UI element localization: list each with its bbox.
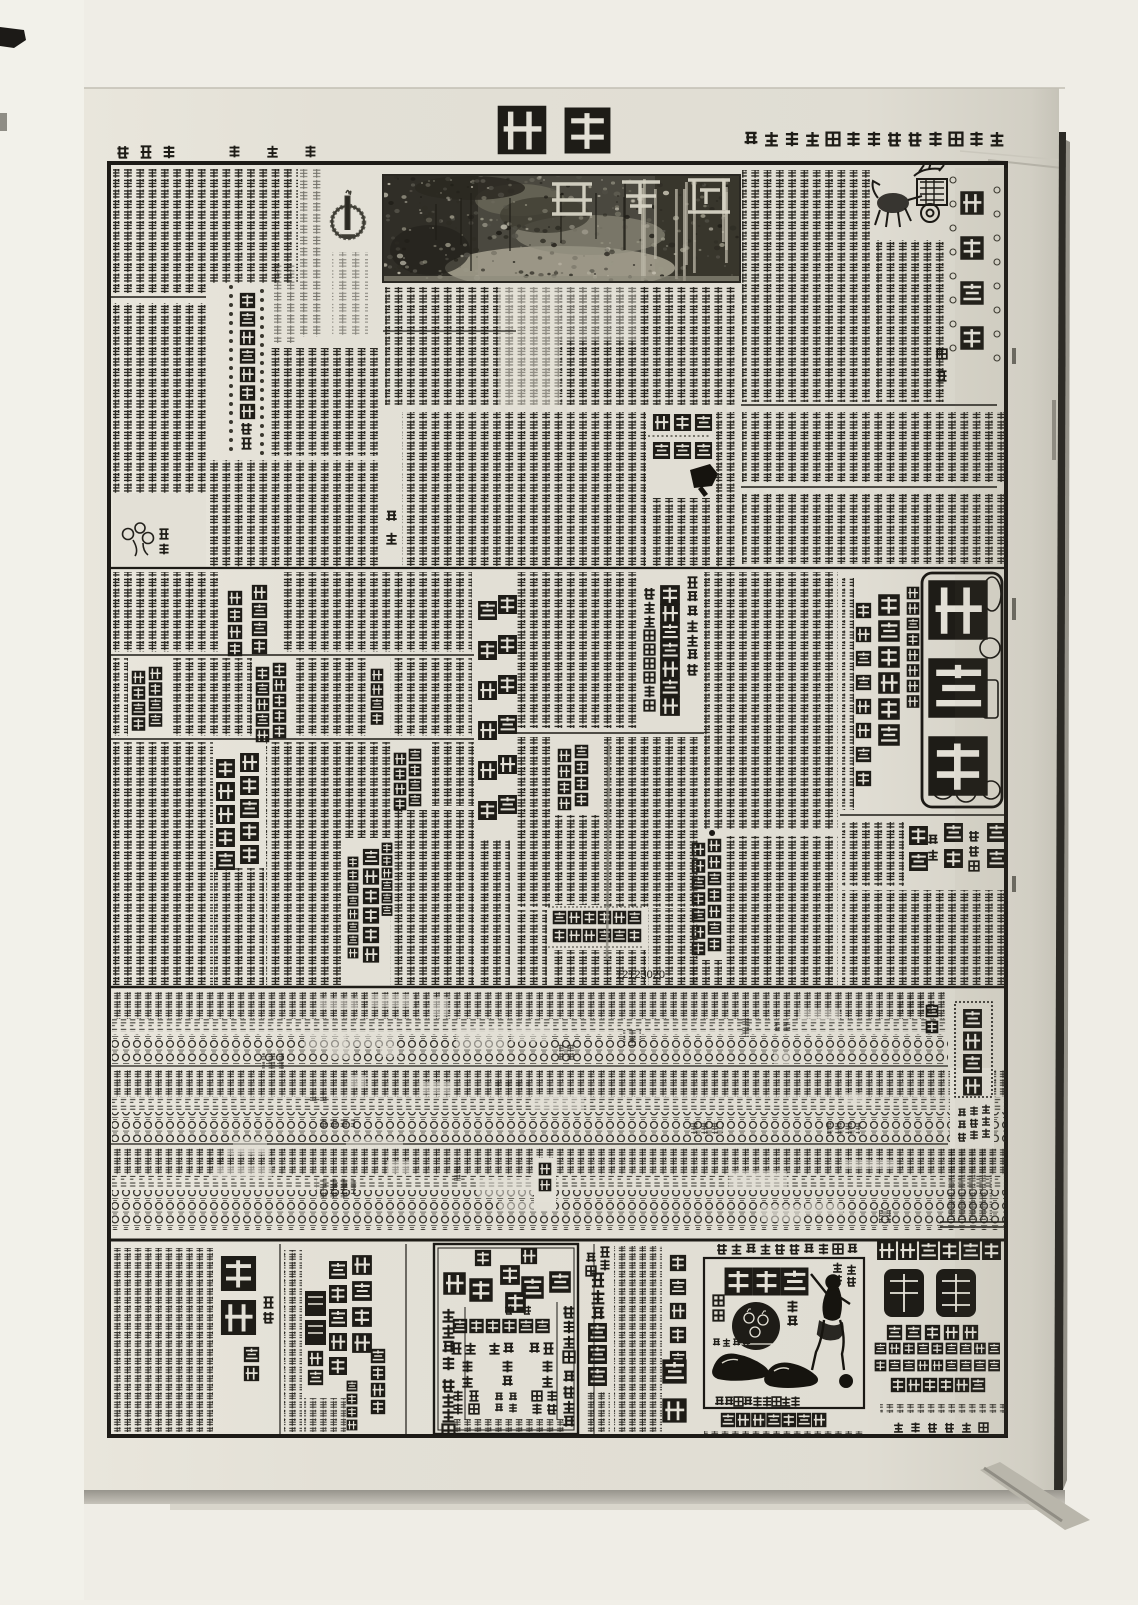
svg-text:12123020: 12123020: [616, 969, 665, 981]
